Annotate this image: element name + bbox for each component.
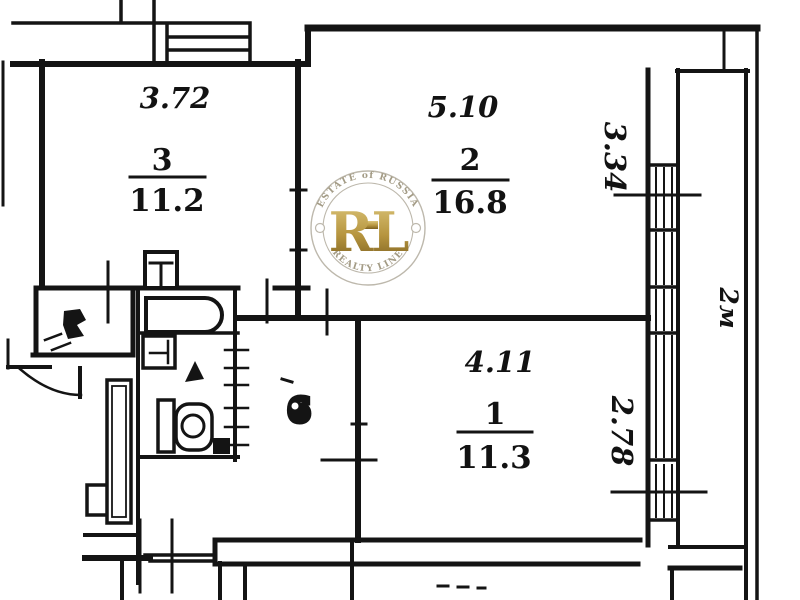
room-2-depth-dim: 3.34 [598,122,632,193]
door-swing-mark [185,361,204,382]
labels: 3.72 3 11.2 5.10 2 16.8 3.34 4.11 1 11.3… [129,81,743,476]
room-1-width-dim: 4.11 [465,345,536,379]
fixtures [20,252,230,523]
room-3-width-dim: 3.72 [140,81,211,115]
toilet-icon [158,400,230,454]
floor-plan: 3.72 3 11.2 5.10 2 16.8 3.34 4.11 1 11.3… [0,0,800,600]
niche-box [87,485,105,515]
entrance-door-arc [20,369,81,395]
room-1-depth-dim: 2.78 [605,395,639,467]
bathtub-icon [146,298,222,332]
hall-number: 6 [288,391,310,429]
kitchen-sink-icon [145,252,177,288]
watermark-logo: ESTATE of RUSSIA REALTY LINE RL [311,171,425,285]
watermark-left-dot [316,224,325,233]
room-1-area: 11.3 [456,440,532,476]
ventilation-shaft-mark [63,309,86,339]
room-2-area: 16.8 [432,185,508,221]
room-1-number: 1 [485,397,506,432]
watermark-monogram: RL [329,200,409,264]
hall-number-notch [292,403,299,410]
watermark-right-dot [412,224,421,233]
room-3-area: 11.2 [129,183,205,219]
washbasin-icon [143,336,175,368]
balcony-width-label: 2м [714,286,743,328]
built-in-closet-icon [107,380,131,523]
room-2-number: 2 [460,143,481,178]
room-3-number: 3 [152,143,173,178]
window-pane-lines [656,168,672,517]
room-2-width-dim: 5.10 [428,90,499,124]
